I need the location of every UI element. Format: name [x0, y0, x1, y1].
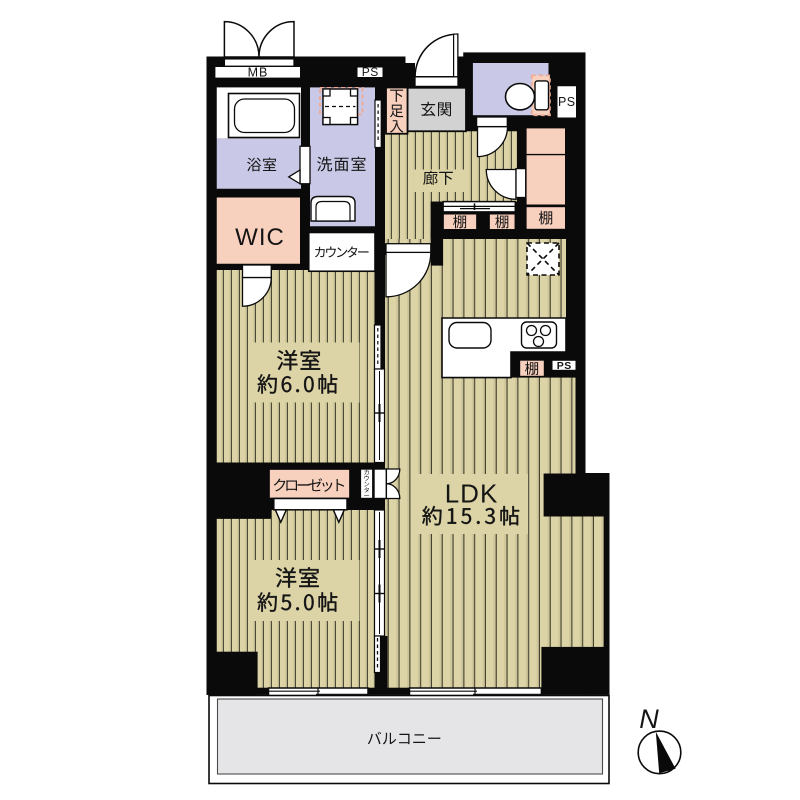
svg-text:PS: PS: [362, 65, 379, 79]
svg-text:PS: PS: [558, 95, 576, 109]
svg-text:PS: PS: [557, 360, 572, 372]
svg-text:N: N: [639, 704, 659, 734]
svg-text:MB: MB: [248, 66, 269, 80]
svg-text:LDK: LDK: [445, 479, 499, 509]
svg-text:WIC: WIC: [235, 224, 285, 251]
